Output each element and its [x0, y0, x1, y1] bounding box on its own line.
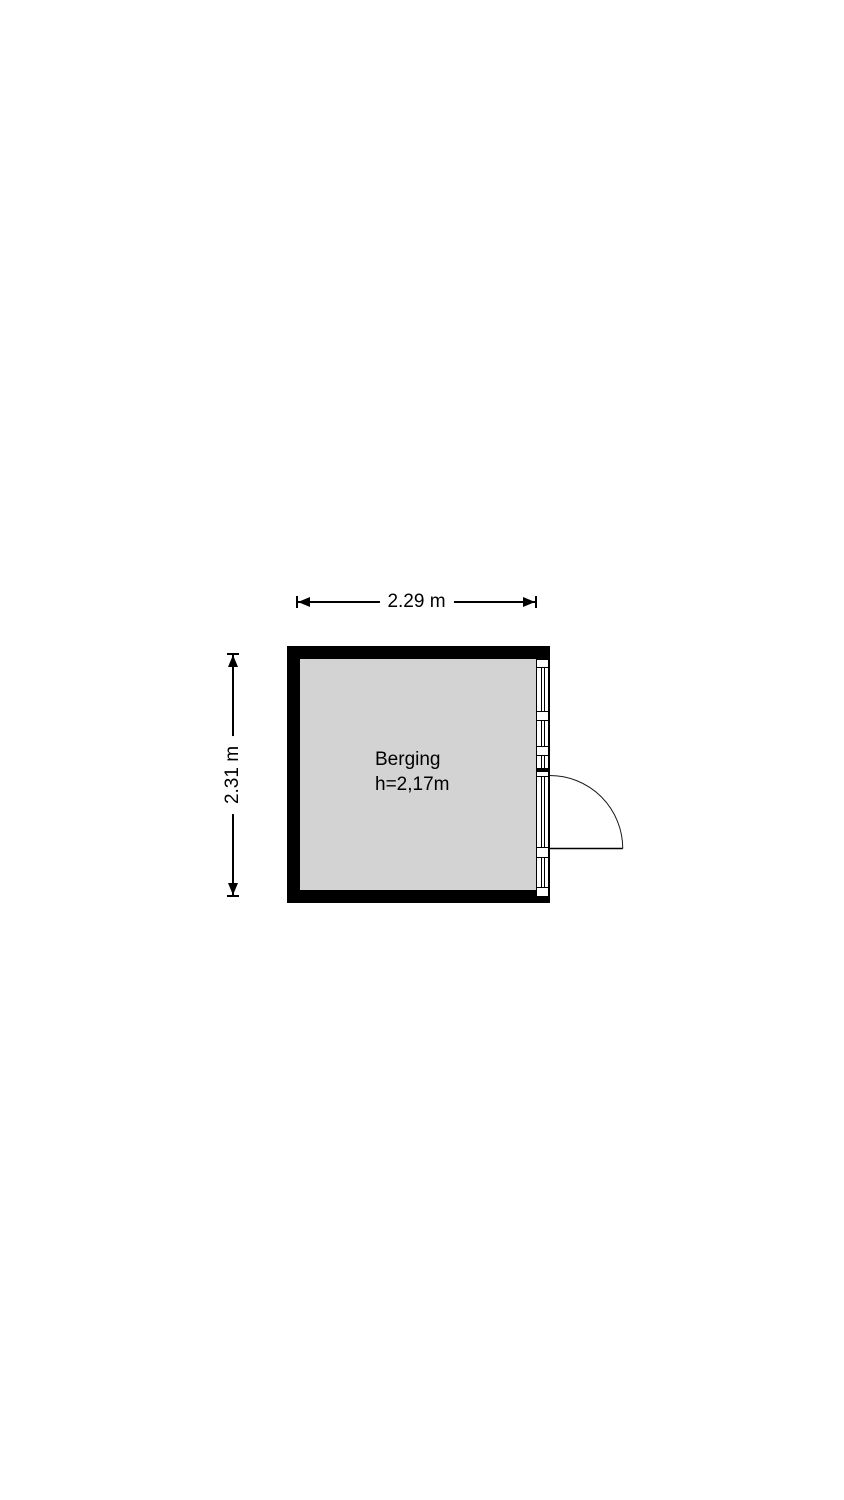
window-mullion	[536, 711, 549, 721]
width-dimension: 2.29 m	[296, 592, 537, 612]
room-name: Berging	[375, 747, 449, 772]
width-dimension-end-tick	[535, 596, 537, 608]
door-glazing	[536, 777, 549, 847]
door-swing	[549, 772, 629, 852]
room-ceiling-height: h=2,17m	[375, 772, 449, 797]
door-jamb	[536, 768, 549, 777]
window-mullion	[536, 746, 549, 756]
arrow-right-icon	[523, 597, 535, 607]
door-arc	[550, 776, 623, 849]
window-wall	[536, 659, 549, 897]
window-pane	[541, 858, 545, 887]
arrow-down-icon	[228, 883, 238, 895]
window-glazing	[536, 668, 549, 711]
width-dimension-label: 2.29 m	[379, 591, 453, 613]
arrow-left-icon	[298, 597, 310, 607]
room-label: Berging h=2,17m	[375, 747, 449, 797]
window-glazing	[536, 756, 549, 768]
window-glazing	[536, 721, 549, 746]
height-dimension-label: 2.31 m	[222, 736, 244, 814]
window-frame-end	[536, 659, 549, 668]
door-hinge-block	[536, 847, 549, 858]
window-glazing	[536, 858, 549, 887]
window-pane	[541, 777, 545, 847]
window-pane	[541, 668, 545, 711]
window-pane	[541, 756, 545, 768]
window-frame-end	[536, 887, 549, 897]
height-dimension-end-tick	[227, 895, 239, 897]
floorplan-canvas: 2.29 m 2.31 m Berging h=2,17m	[0, 0, 844, 1500]
arrow-up-icon	[228, 655, 238, 667]
window-pane	[541, 721, 545, 746]
height-dimension: 2.31 m	[223, 653, 243, 897]
